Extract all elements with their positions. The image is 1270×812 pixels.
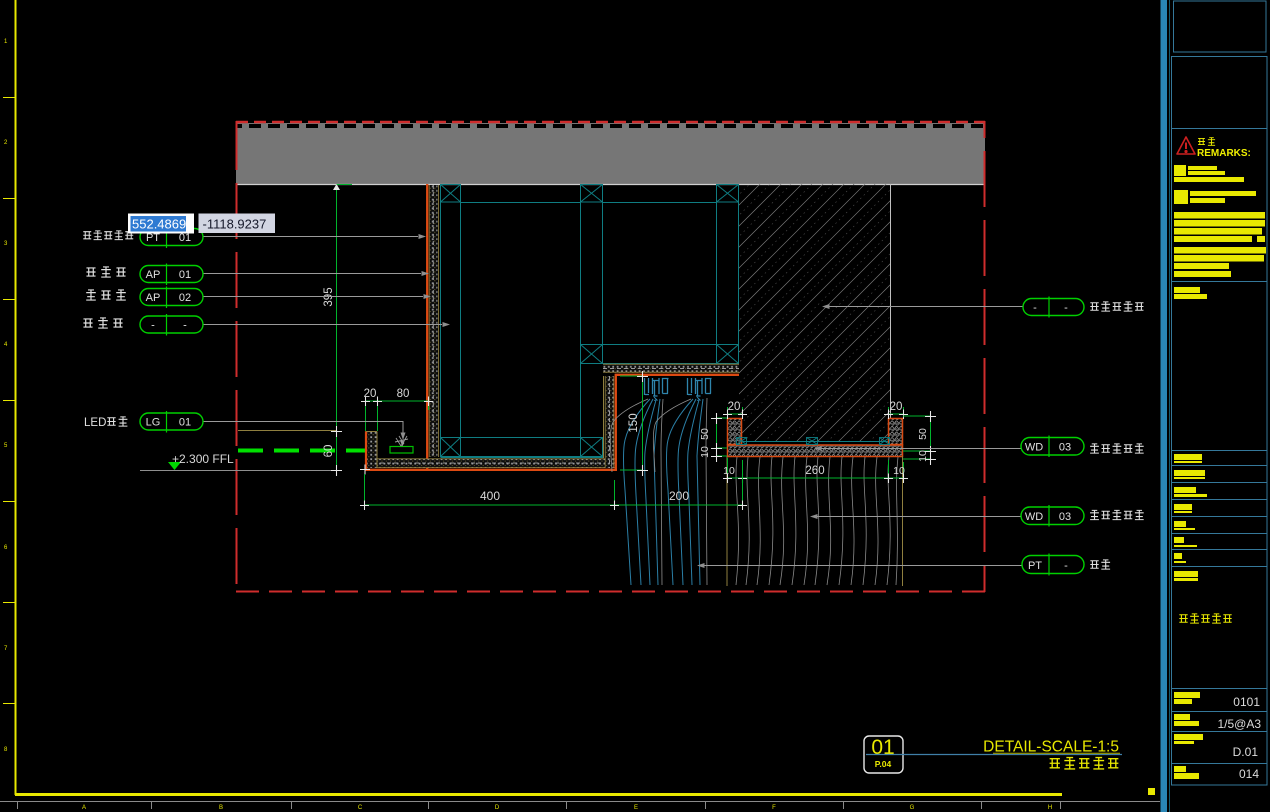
svg-text:B: B xyxy=(219,805,223,811)
svg-text:01: 01 xyxy=(179,269,191,281)
svg-text:02: 02 xyxy=(179,292,191,304)
svg-text:-: - xyxy=(183,320,187,332)
svg-text:D.01: D.01 xyxy=(1233,745,1259,759)
svg-text:C: C xyxy=(358,805,363,811)
svg-text:400: 400 xyxy=(480,489,500,503)
svg-text:AP: AP xyxy=(146,292,161,304)
svg-text:01: 01 xyxy=(179,417,191,429)
svg-text:0101: 0101 xyxy=(1233,695,1260,709)
svg-text:G: G xyxy=(910,805,915,811)
svg-text:260: 260 xyxy=(805,465,824,477)
svg-text:+2.300 FFL: +2.300 FFL xyxy=(172,452,234,466)
svg-text:LED: LED xyxy=(84,417,106,429)
svg-text:REMARKS:: REMARKS: xyxy=(1197,148,1251,159)
svg-text:200: 200 xyxy=(669,489,689,503)
svg-text:03: 03 xyxy=(1059,442,1071,454)
svg-text:F: F xyxy=(772,805,776,811)
svg-text:-: - xyxy=(151,320,155,332)
svg-text:E: E xyxy=(634,805,638,811)
svg-text:-1118.9237: -1118.9237 xyxy=(203,217,267,232)
svg-text:A: A xyxy=(82,805,86,811)
svg-text:P.04: P.04 xyxy=(875,759,892,769)
svg-text:80: 80 xyxy=(397,388,410,400)
svg-text:-: - xyxy=(1033,302,1037,314)
svg-text:014: 014 xyxy=(1239,767,1259,781)
svg-text:10: 10 xyxy=(917,450,929,462)
svg-text:10: 10 xyxy=(723,465,735,477)
svg-text:-: - xyxy=(1064,560,1068,572)
svg-text:10: 10 xyxy=(699,446,711,458)
svg-text:50: 50 xyxy=(917,428,929,440)
svg-text:20: 20 xyxy=(890,401,903,413)
svg-text:WD: WD xyxy=(1025,511,1043,523)
svg-text:-: - xyxy=(1064,302,1068,314)
svg-text:552.4869: 552.4869 xyxy=(132,217,186,232)
svg-text:PT: PT xyxy=(146,232,160,244)
svg-text:DETAIL-SCALE-1:5: DETAIL-SCALE-1:5 xyxy=(983,739,1119,756)
svg-text:150: 150 xyxy=(628,413,640,432)
svg-text:WD: WD xyxy=(1025,442,1043,454)
svg-text:03: 03 xyxy=(1059,511,1071,523)
svg-text:10: 10 xyxy=(893,465,905,477)
svg-text:20: 20 xyxy=(364,388,377,400)
svg-text:50: 50 xyxy=(699,428,711,440)
svg-text:01: 01 xyxy=(871,736,894,759)
svg-text:20: 20 xyxy=(728,401,741,413)
svg-text:01: 01 xyxy=(179,232,191,244)
svg-text:LG: LG xyxy=(146,417,161,429)
svg-text:D: D xyxy=(495,805,500,811)
svg-text:1/5@A3: 1/5@A3 xyxy=(1217,717,1261,731)
svg-text:H: H xyxy=(1048,805,1052,811)
svg-text:AP: AP xyxy=(146,269,161,281)
svg-text:PT: PT xyxy=(1028,560,1042,572)
svg-text:60: 60 xyxy=(323,445,335,458)
